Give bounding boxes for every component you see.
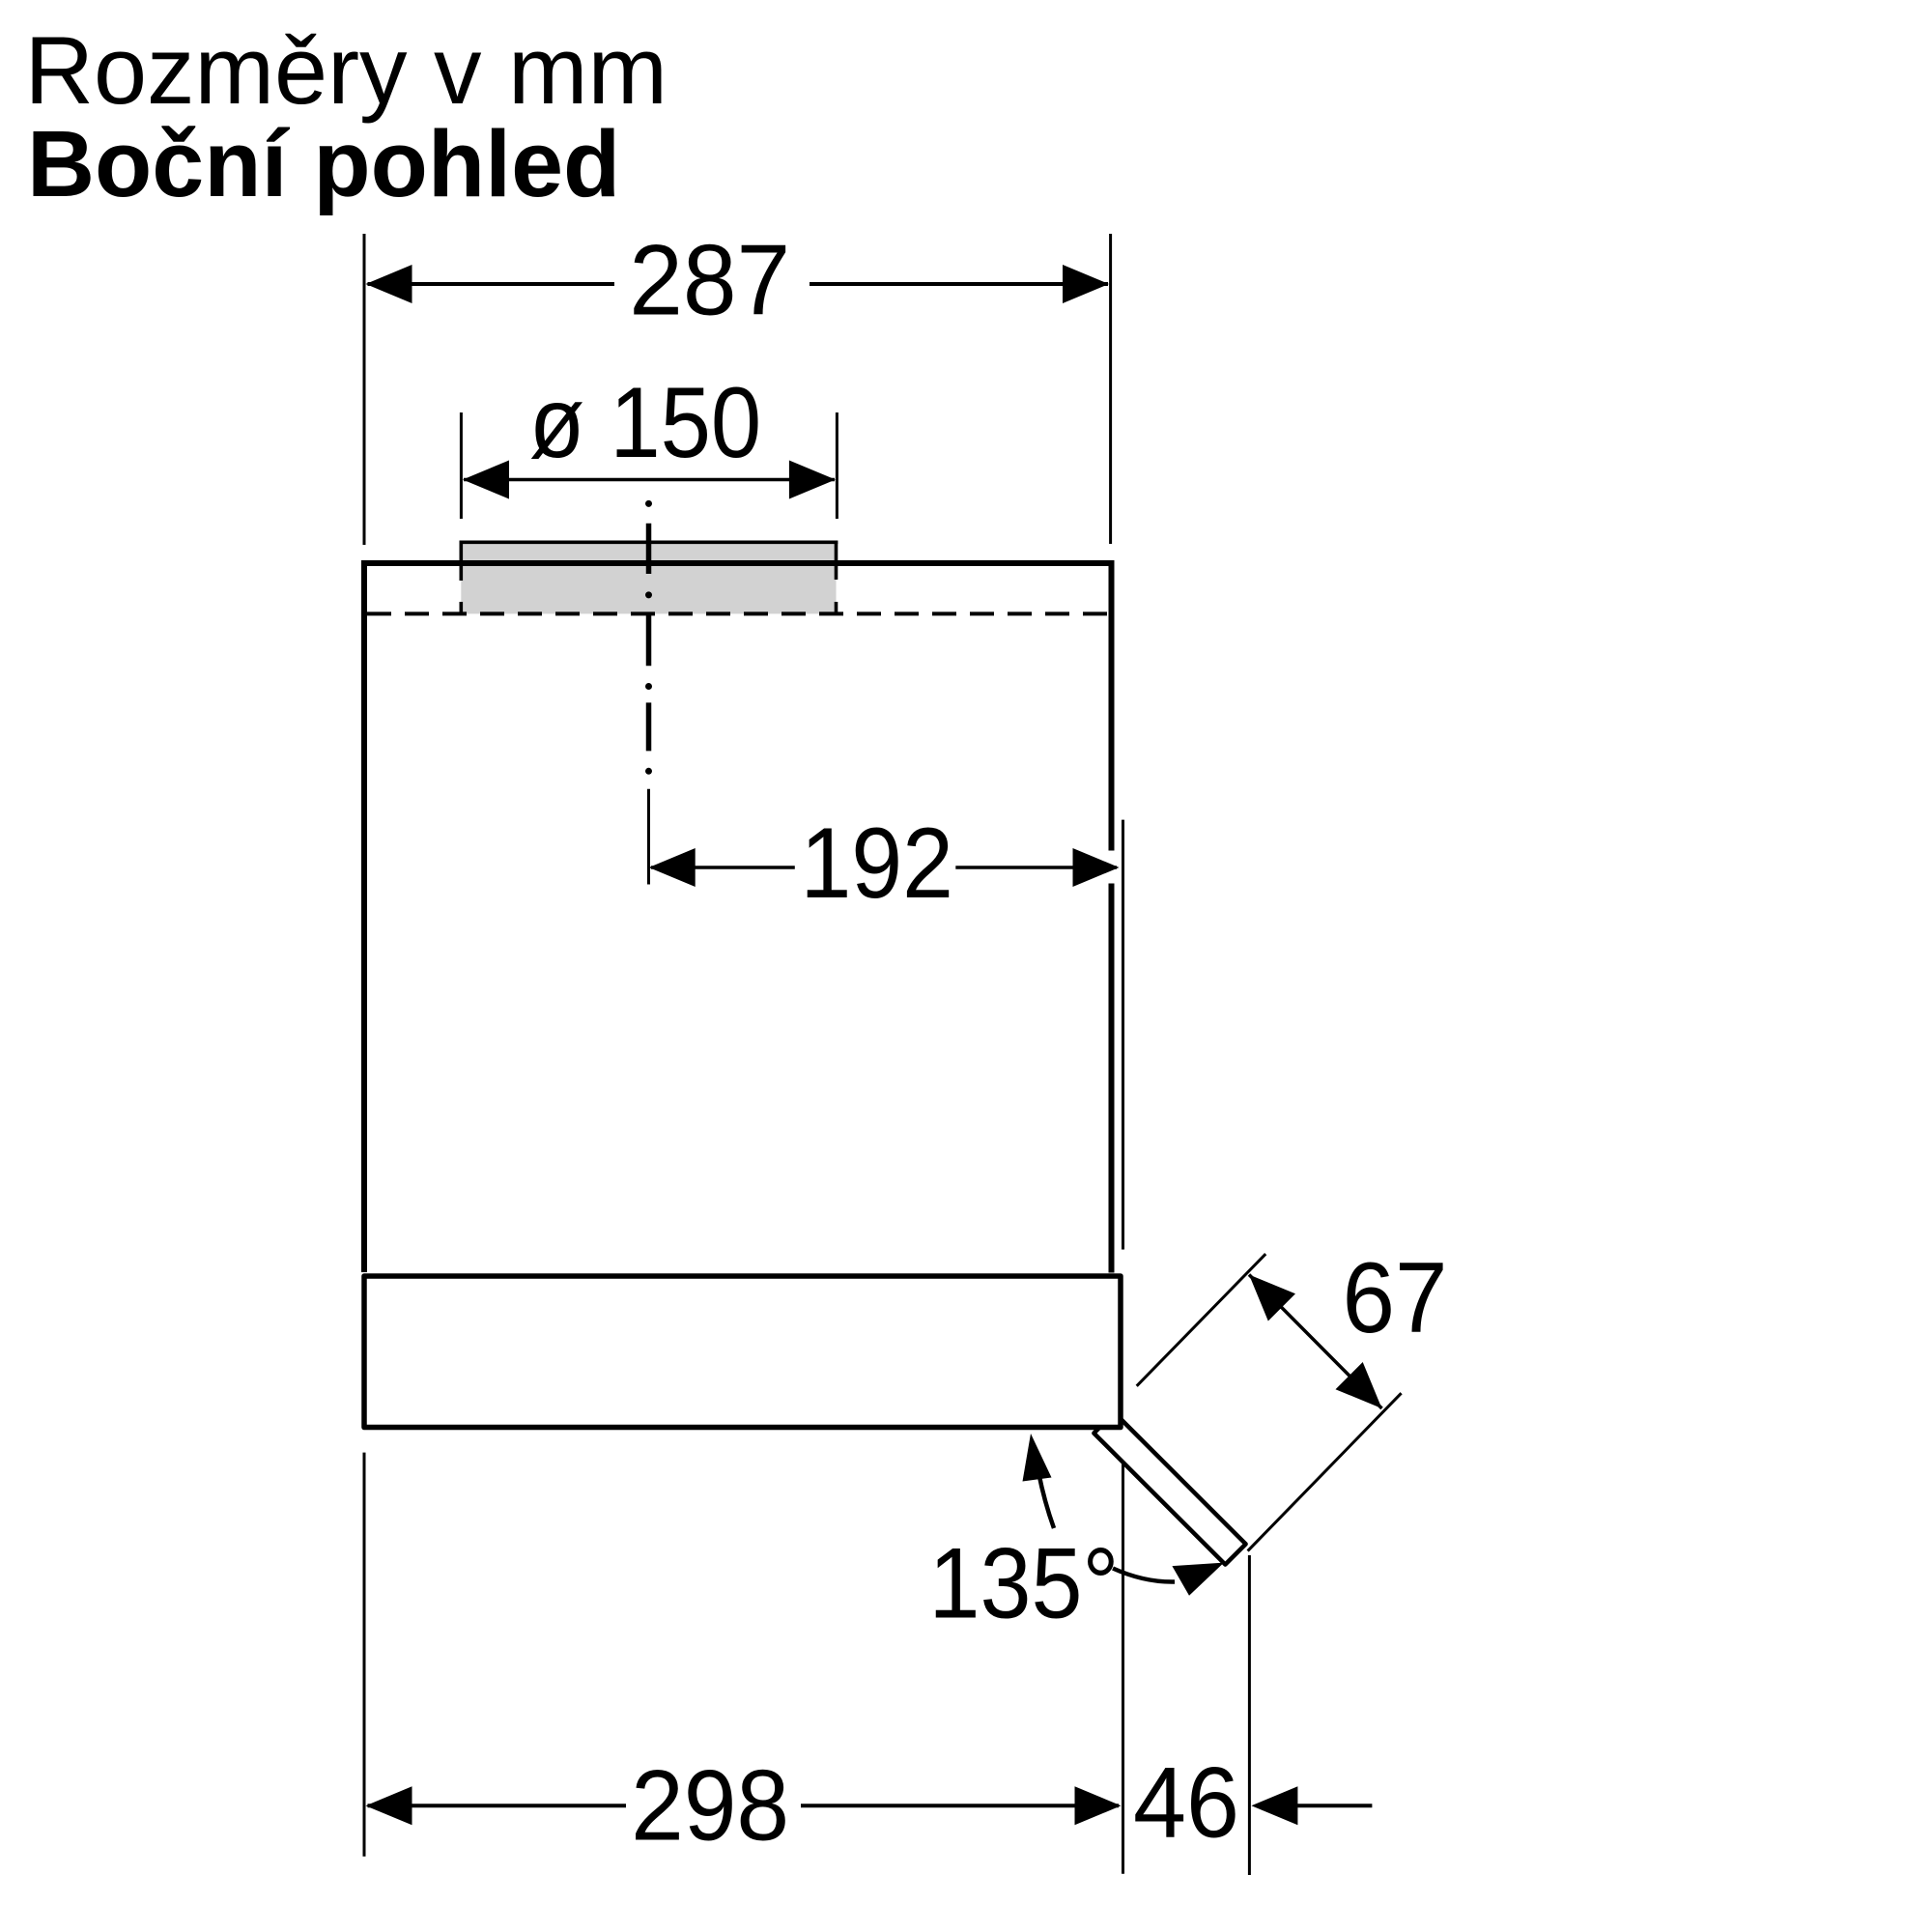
svg-text:298: 298 [631, 1749, 789, 1861]
svg-text:67: 67 [1343, 1242, 1448, 1354]
svg-text:192: 192 [800, 808, 953, 920]
svg-text:46: 46 [1133, 1747, 1239, 1859]
svg-text:135°: 135° [929, 1527, 1120, 1639]
svg-text:Rozměry v mm: Rozměry v mm [25, 16, 668, 124]
svg-text:Boční pohled: Boční pohled [27, 111, 620, 216]
svg-text:ø 150: ø 150 [529, 367, 762, 479]
svg-text:287: 287 [629, 225, 790, 337]
